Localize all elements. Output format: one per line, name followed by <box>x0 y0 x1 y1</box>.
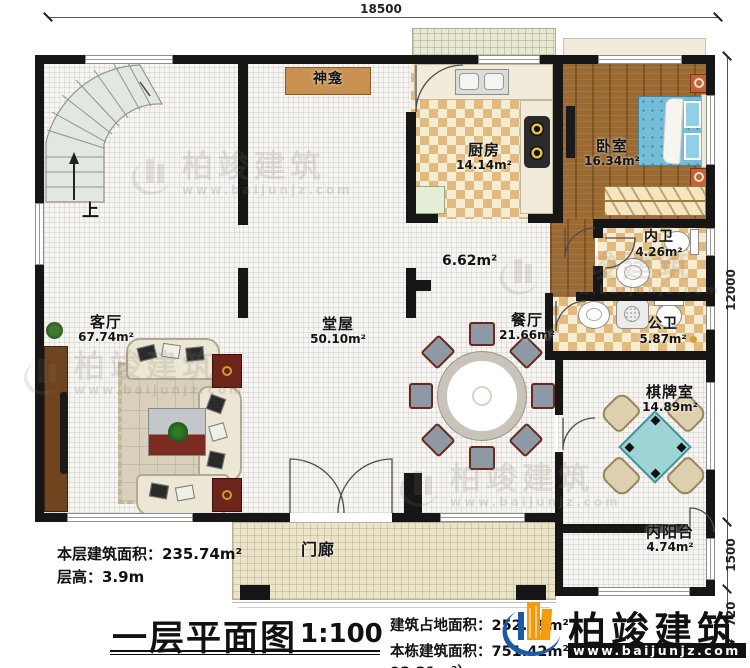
public-bath-label: 公卫 5.87m² <box>630 317 696 346</box>
room-name: 门廊 <box>288 541 348 559</box>
room-name: 内阳台 <box>632 524 708 541</box>
room-name: 卧室 <box>574 138 650 155</box>
floor-height-text: 层高：3.9m <box>57 566 144 587</box>
room-area: 4.74m² <box>632 541 708 554</box>
living-room-label: 客厅 67.74m² <box>68 314 144 344</box>
floor-plan-canvas: 18500 12000 1500 720 上 <box>0 0 750 668</box>
room-name: 内卫 <box>626 230 692 246</box>
room-name: 棋牌室 <box>632 384 708 401</box>
inner-balcony-label: 内阳台 4.74m² <box>632 524 708 554</box>
room-name: 厨房 <box>446 142 522 159</box>
room-area: 16.34m² <box>574 155 650 168</box>
porch-column <box>240 585 270 600</box>
plan-scale: 1:100 <box>300 619 383 649</box>
floor-area-text: 本层建筑面积：235.74m² <box>57 543 242 564</box>
corridor-area-label: 6.62m² <box>442 253 497 269</box>
hall-label: 堂屋 50.10m² <box>300 316 376 346</box>
room-area: 21.66m² <box>490 329 564 342</box>
room-area: 50.10m² <box>300 333 376 346</box>
kitchen-label: 厨房 14.14m² <box>446 142 522 172</box>
porch-label: 门廊 <box>288 541 348 559</box>
room-name: 堂屋 <box>300 316 376 333</box>
room-area: 4.26m² <box>626 246 692 259</box>
room-area: 14.14m² <box>446 159 522 172</box>
room-area: 5.87m² <box>630 333 696 346</box>
chess-room-label: 棋牌室 14.89m² <box>632 384 708 414</box>
room-name: 公卫 <box>630 317 696 333</box>
room-area: 67.74m² <box>68 331 144 344</box>
title-underline <box>110 650 380 655</box>
room-name: 客厅 <box>68 314 144 331</box>
dining-label: 餐厅 21.66m² <box>490 312 564 342</box>
room-area: 14.89m² <box>632 401 708 414</box>
inner-bath-label: 内卫 4.26m² <box>626 230 692 259</box>
room-name: 餐厅 <box>490 312 564 329</box>
bedroom-label: 卧室 16.34m² <box>574 138 650 168</box>
brand-logo-icon <box>500 596 566 660</box>
brand-logo-url: www.baijunjz.com <box>568 643 746 658</box>
